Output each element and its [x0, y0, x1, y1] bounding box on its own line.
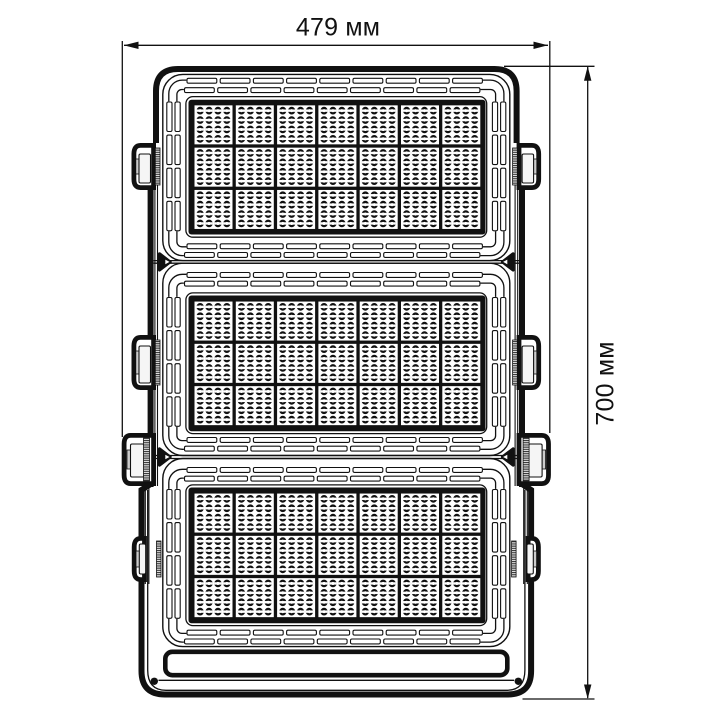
svg-text:700 мм: 700 мм: [592, 341, 620, 425]
svg-text:479 мм: 479 мм: [296, 13, 380, 41]
